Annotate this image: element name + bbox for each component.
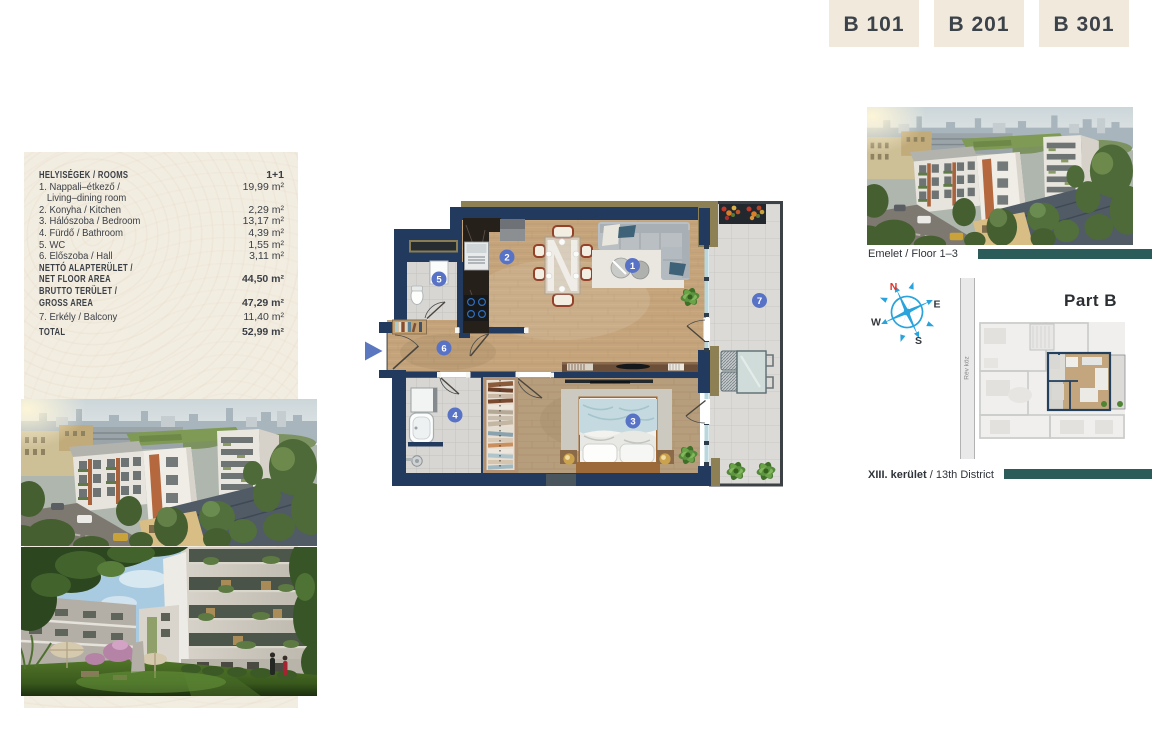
svg-text:1: 1 — [630, 261, 636, 272]
svg-text:2: 2 — [504, 253, 509, 264]
svg-text:W: W — [871, 317, 881, 329]
svg-text:S: S — [915, 335, 922, 347]
svg-text:N: N — [890, 281, 898, 293]
svg-text:5: 5 — [436, 275, 442, 286]
svg-text:E: E — [933, 299, 940, 311]
svg-text:4: 4 — [452, 411, 458, 422]
svg-text:7: 7 — [757, 296, 762, 307]
svg-text:3: 3 — [630, 417, 635, 428]
svg-text:6: 6 — [441, 344, 446, 355]
